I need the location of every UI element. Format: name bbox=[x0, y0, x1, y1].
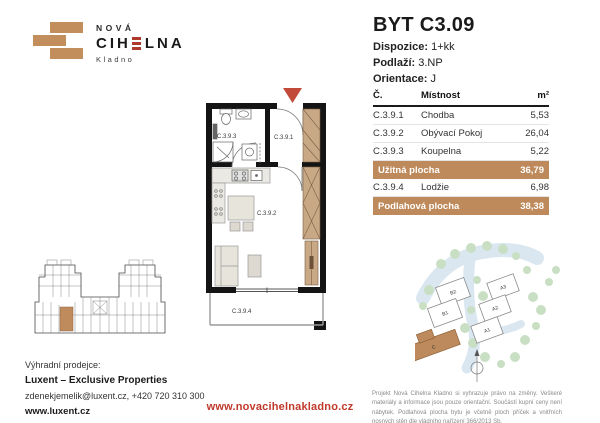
room-area: 5,53 bbox=[511, 110, 549, 121]
room-area: 5,22 bbox=[511, 146, 549, 157]
room-label-obyvaci: C.3.9.2 bbox=[257, 211, 277, 217]
unit-orientace: Orientace: J bbox=[373, 73, 573, 85]
table-header-row: Č. Místnost m² bbox=[373, 88, 549, 107]
logo-cihelna-post: LNA bbox=[145, 35, 185, 52]
table-row: C.3.9.2 Obývací Pokoj 26,04 bbox=[373, 125, 549, 143]
col-header-number: Č. bbox=[373, 90, 421, 101]
room-number: C.3.9.4 bbox=[373, 182, 421, 193]
podlazi-label: Podlaží: bbox=[373, 57, 415, 69]
brick-e-icon bbox=[132, 37, 141, 50]
room-name: Obývací Pokoj bbox=[421, 128, 511, 139]
room-number: C.3.9.2 bbox=[373, 128, 421, 139]
apartment-floorplan: C.3.9.3 C.3.9.1 C.3.9.2 C.3.9.4 bbox=[204, 86, 328, 334]
room-number: C.3.9.1 bbox=[373, 110, 421, 121]
wardrobe-strip bbox=[303, 109, 320, 285]
orientace-value: J bbox=[430, 73, 436, 85]
logo-cihelna-text: CIH LNA bbox=[96, 35, 185, 52]
room-label-chodba: C.3.9.1 bbox=[274, 135, 294, 141]
building-c-highlighted: C bbox=[415, 322, 460, 361]
seller-label: Výhradní prodejce: bbox=[25, 360, 205, 370]
room-name: Lodžie bbox=[421, 182, 511, 193]
room-label-koupelna: C.3.9.3 bbox=[217, 134, 237, 140]
project-website-link[interactable]: www.novacihelnakladno.cz bbox=[180, 401, 380, 413]
orientace-label: Orientace: bbox=[373, 73, 427, 85]
room-name: Chodba bbox=[421, 110, 511, 121]
unit-dispozice: Dispozice: 1+kk bbox=[373, 41, 573, 53]
room-number: C.3.9.3 bbox=[373, 146, 421, 157]
seller-website-link[interactable]: www.luxent.cz bbox=[25, 406, 205, 417]
unit-title: BYT C3.09 bbox=[373, 14, 573, 37]
highlighted-unit-marker bbox=[60, 307, 73, 331]
room-table: Č. Místnost m² C.3.9.1 Chodba 5,53 C.3.9… bbox=[373, 88, 549, 215]
brochure-page: NOVÁ CIH LNA Kladno BYT C3.09 Dispozice:… bbox=[0, 0, 600, 423]
col-header-room: Místnost bbox=[421, 90, 511, 101]
site-plan: B2 B1 A3 A2 A1 C bbox=[415, 240, 595, 385]
table-row: C.3.9.1 Chodba 5,53 bbox=[373, 107, 549, 125]
usable-area-label: Užitná plocha bbox=[378, 165, 440, 176]
nova-cihelna-logo: NOVÁ CIH LNA Kladno bbox=[33, 22, 185, 64]
summary-row-floor-area: Podlahová plocha 38,38 bbox=[373, 197, 549, 215]
podlazi-value: 3.NP bbox=[418, 57, 442, 69]
seller-block: Výhradní prodejce: Luxent – Exclusive Pr… bbox=[25, 360, 205, 417]
unit-header: BYT C3.09 Dispozice: 1+kk Podlaží: 3.NP … bbox=[373, 14, 573, 85]
unit-podlazi: Podlaží: 3.NP bbox=[373, 57, 573, 69]
entrance-arrow-icon bbox=[283, 88, 302, 103]
summary-row-usable-area: Užitná plocha 36,79 bbox=[373, 161, 549, 179]
room-label-lodzie: C.3.9.4 bbox=[232, 309, 252, 315]
usable-area-value: 36,79 bbox=[520, 165, 544, 176]
seller-contact[interactable]: zdenekjemelik@luxent.cz, +420 720 310 30… bbox=[25, 391, 205, 401]
window-line bbox=[236, 288, 298, 294]
logo-wordmark: NOVÁ CIH LNA Kladno bbox=[96, 22, 185, 64]
dispozice-label: Dispozice: bbox=[373, 41, 428, 53]
logo-city-text: Kladno bbox=[96, 55, 185, 64]
room-name: Koupelna bbox=[421, 146, 511, 157]
floor-area-value: 38,38 bbox=[520, 201, 544, 212]
brick-logo-icon bbox=[33, 22, 83, 62]
seller-name: Luxent – Exclusive Properties bbox=[25, 375, 205, 386]
logo-nova-text: NOVÁ bbox=[96, 23, 185, 33]
legal-disclaimer: Projekt Nová Cihelna Kladno si vyhrazuje… bbox=[372, 390, 562, 423]
table-row: C.3.9.3 Koupelna 5,22 bbox=[373, 143, 549, 161]
col-header-area: m² bbox=[511, 90, 549, 101]
table-row: C.3.9.4 Lodžie 6,98 bbox=[373, 179, 549, 197]
dispozice-value: 1+kk bbox=[431, 41, 455, 53]
room-area: 6,98 bbox=[511, 182, 549, 193]
room-area: 26,04 bbox=[511, 128, 549, 139]
floor-key-plan bbox=[25, 245, 175, 345]
floor-area-label: Podlahová plocha bbox=[378, 201, 459, 212]
loggia-walls bbox=[210, 293, 323, 325]
logo-cihelna-pre: CIH bbox=[96, 35, 131, 52]
